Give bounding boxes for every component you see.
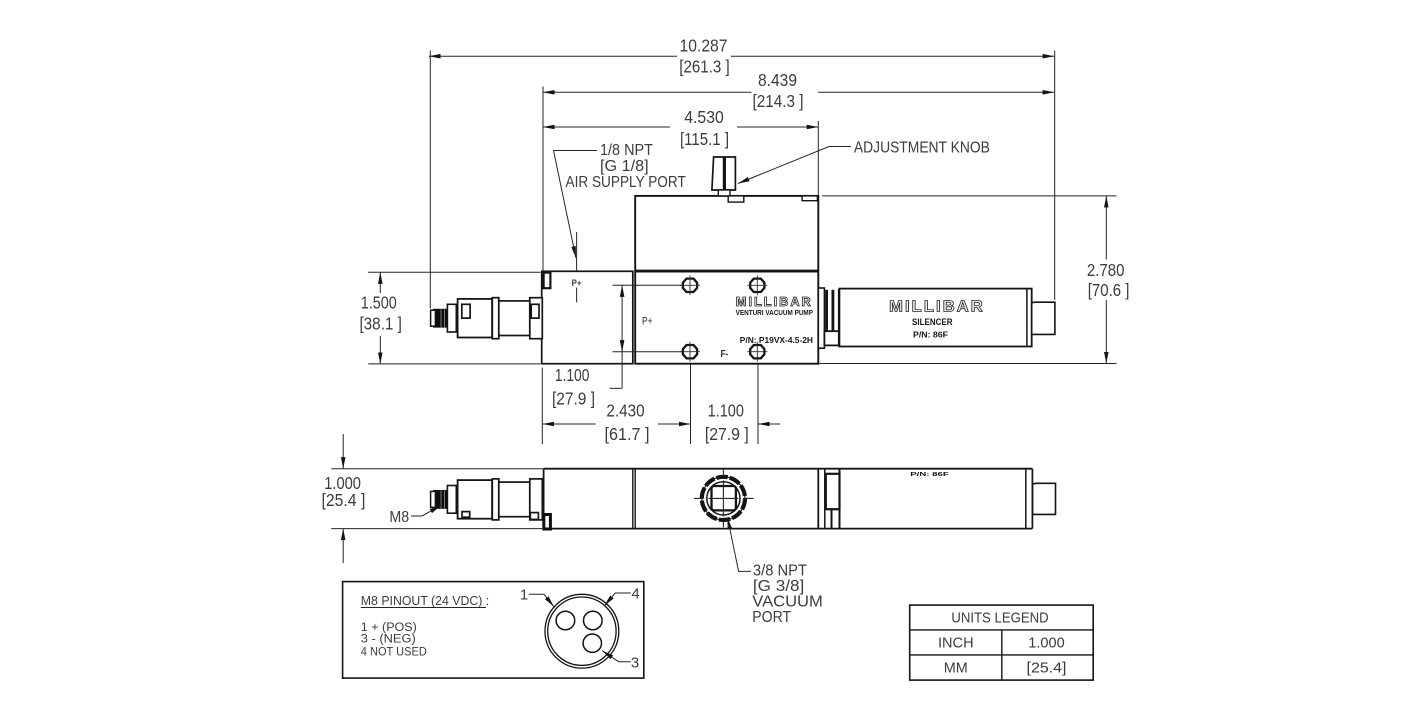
svg-text:[27.9 ]: [27.9 ] bbox=[552, 389, 595, 409]
svg-text:1.100: 1.100 bbox=[555, 365, 590, 385]
svg-text:P+: P+ bbox=[642, 315, 653, 327]
svg-text:1: 1 bbox=[520, 586, 528, 603]
svg-text:3/8 NPT: 3/8 NPT bbox=[753, 562, 807, 579]
svg-text:1.500: 1.500 bbox=[361, 293, 397, 313]
svg-text:[70.6 ]: [70.6 ] bbox=[1088, 280, 1130, 300]
svg-text:PORT: PORT bbox=[752, 609, 791, 626]
svg-text:MILLIBAR: MILLIBAR bbox=[889, 298, 985, 315]
svg-text:4.530: 4.530 bbox=[684, 107, 724, 127]
svg-text:INCH: INCH bbox=[938, 635, 974, 652]
svg-text:[G 3/8]: [G 3/8] bbox=[753, 578, 804, 595]
svg-text:3 - (NEG): 3 - (NEG) bbox=[361, 634, 416, 646]
svg-text:1 + (POS): 1 + (POS) bbox=[361, 622, 417, 634]
svg-text:AIR SUPPLY PORT: AIR SUPPLY PORT bbox=[566, 174, 686, 191]
svg-text:1/8 NPT: 1/8 NPT bbox=[600, 142, 653, 159]
svg-text:ADJUSTMENT KNOB: ADJUSTMENT KNOB bbox=[854, 139, 990, 156]
svg-text:M8 PINOUT (24 VDC) :: M8 PINOUT (24 VDC) : bbox=[361, 593, 489, 608]
svg-text:SILENCER: SILENCER bbox=[912, 317, 953, 328]
svg-text:4 NOT USED: 4 NOT USED bbox=[361, 646, 427, 658]
svg-text:[61.7 ]: [61.7 ] bbox=[605, 424, 650, 444]
svg-text:2.780: 2.780 bbox=[1087, 260, 1125, 280]
svg-text:[25.4]: [25.4] bbox=[1027, 660, 1067, 677]
svg-text:1.100: 1.100 bbox=[708, 401, 745, 421]
svg-text:10.287: 10.287 bbox=[680, 36, 728, 56]
svg-text:P/N: P19VX-4.5-2H: P/N: P19VX-4.5-2H bbox=[740, 335, 813, 345]
svg-text:[25.4 ]: [25.4 ] bbox=[321, 490, 365, 510]
svg-text:P/N: 86F: P/N: 86F bbox=[910, 472, 950, 478]
svg-text:MM: MM bbox=[944, 660, 968, 677]
svg-text:VACUUM: VACUUM bbox=[752, 593, 823, 610]
svg-text:[G 1/8]: [G 1/8] bbox=[600, 158, 649, 175]
svg-text:[27.9 ]: [27.9 ] bbox=[705, 424, 749, 444]
svg-text:UNITS LEGEND: UNITS LEGEND bbox=[951, 610, 1048, 627]
svg-text:[38.1 ]: [38.1 ] bbox=[359, 314, 402, 334]
svg-text:[115.1 ]: [115.1 ] bbox=[680, 129, 729, 149]
svg-text:P+: P+ bbox=[572, 278, 582, 288]
svg-text:4: 4 bbox=[631, 586, 639, 603]
svg-text:MILLIBAR: MILLIBAR bbox=[736, 294, 813, 309]
svg-text:8.439: 8.439 bbox=[758, 70, 797, 90]
svg-text:F-: F- bbox=[721, 349, 729, 360]
svg-text:M8: M8 bbox=[389, 509, 409, 526]
svg-text:3: 3 bbox=[631, 654, 639, 671]
svg-text:VENTURI VACUUM PUMP: VENTURI VACUUM PUMP bbox=[736, 310, 814, 317]
svg-text:[261.3 ]: [261.3 ] bbox=[679, 56, 730, 76]
svg-text:P/N: 86F: P/N: 86F bbox=[913, 329, 948, 339]
svg-text:1.000: 1.000 bbox=[1028, 635, 1064, 652]
svg-text:[214.3 ]: [214.3 ] bbox=[753, 91, 804, 111]
svg-text:2.430: 2.430 bbox=[606, 401, 644, 421]
